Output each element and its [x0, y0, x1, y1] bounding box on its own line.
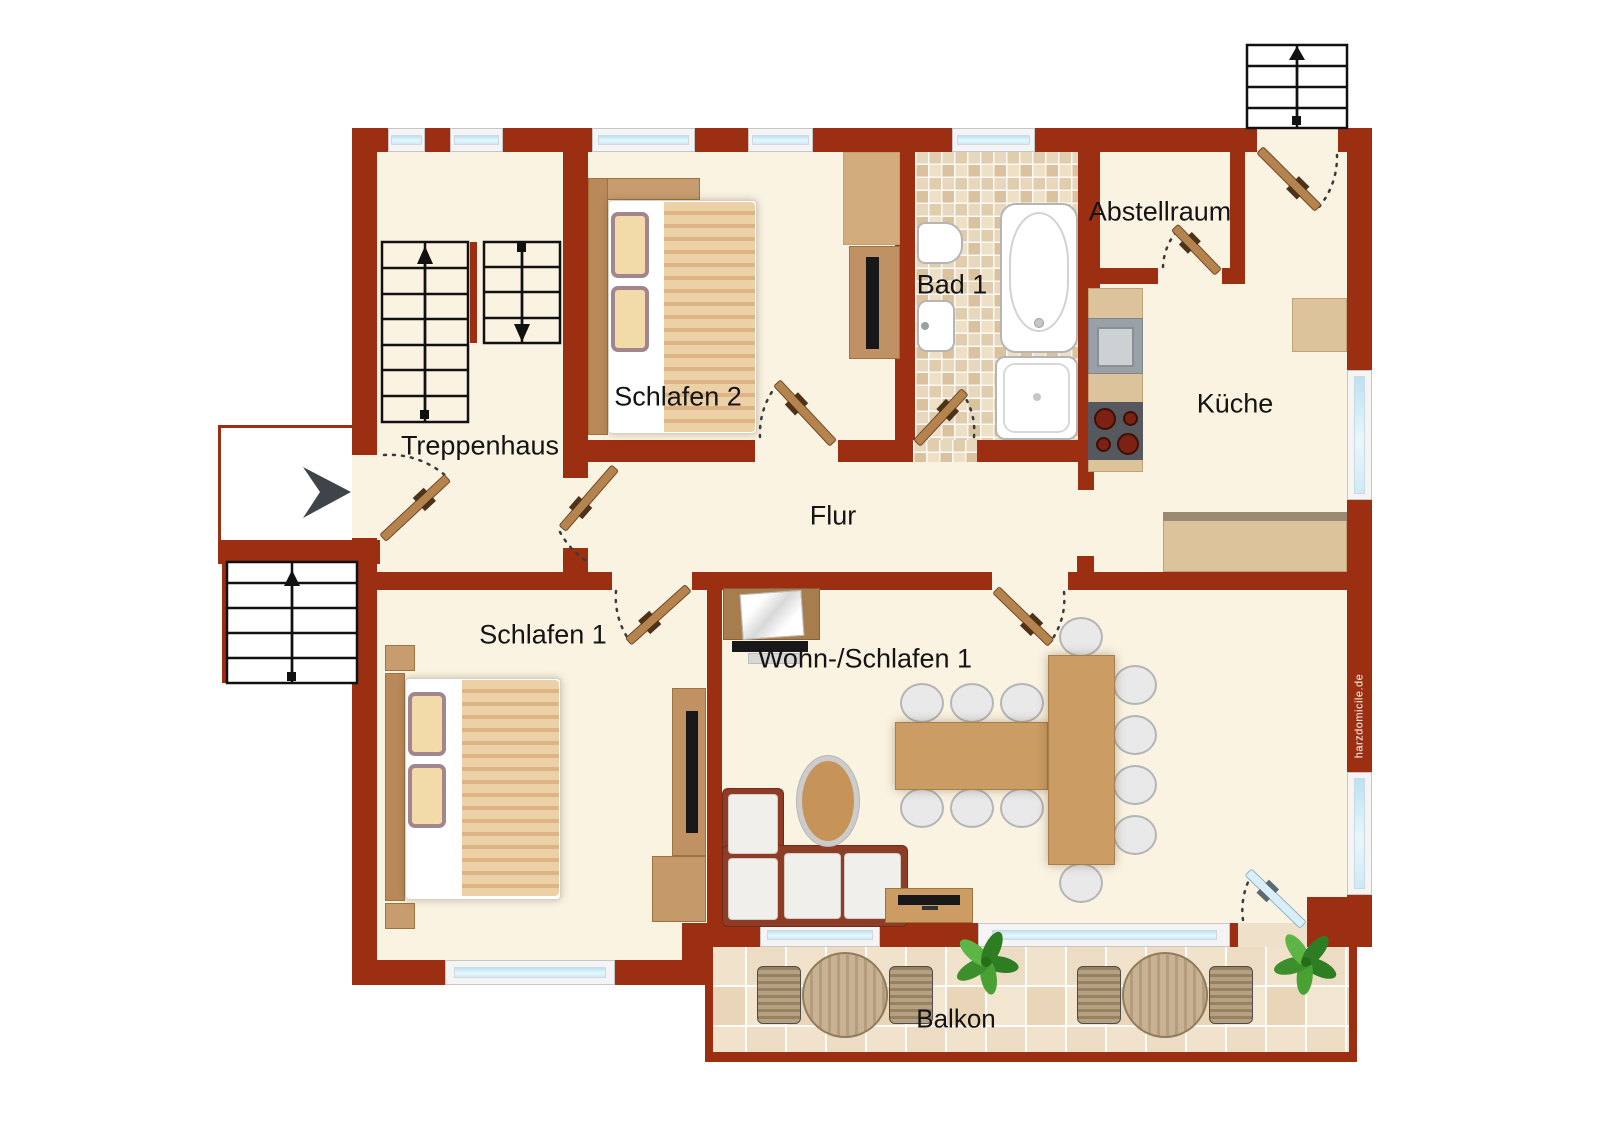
wall-kueche-wohn [1068, 572, 1347, 590]
tv-flat [898, 895, 960, 905]
dining-chair [950, 788, 994, 828]
window [388, 128, 425, 152]
dining-chair [1113, 815, 1157, 855]
dining-chair [1113, 715, 1157, 755]
bed2-pillow [611, 286, 649, 352]
stove-burner [1117, 433, 1139, 455]
dining-table-stem [895, 722, 1048, 790]
dresser-schlafen1 [652, 856, 706, 922]
room-label-wohnschlafen1: Wohn-/Schlafen 1 [758, 644, 972, 675]
bed1-blanket [462, 680, 559, 896]
dining-chair [900, 683, 944, 723]
bathtub-drain [1034, 318, 1044, 328]
watermark-text: harzdomicile.de [1353, 674, 1365, 759]
stove-burner [1094, 408, 1116, 430]
sofa-cushion [728, 794, 778, 854]
window [952, 128, 1035, 152]
wall-jog [682, 923, 707, 985]
coffee-table [797, 756, 859, 846]
dining-chair [1000, 683, 1044, 723]
dining-chair [1000, 788, 1044, 828]
sink-faucet [921, 322, 929, 330]
window-glass [992, 930, 1217, 940]
window-glass [1354, 778, 1366, 889]
bed1-headboard [385, 673, 405, 901]
entrance-door-opening [352, 455, 377, 538]
wall-top [352, 128, 1372, 152]
balcony-table [1122, 952, 1208, 1038]
wall-left-lower [352, 538, 377, 985]
monitor-schlafen2 [866, 257, 879, 349]
wall-schlafen1-bottom-a [352, 960, 445, 985]
exterior-stairs-right [1247, 45, 1347, 128]
bed1-pillow [408, 692, 446, 756]
room-label-abstellraum: Abstellraum [1089, 197, 1232, 228]
corner-desk-mirror [739, 590, 804, 640]
dining-chair [1113, 765, 1157, 805]
stove-burner [1096, 437, 1111, 452]
window [592, 128, 695, 152]
bed1-sheet-fold [450, 680, 462, 896]
window [978, 923, 1230, 947]
monitor-schlafen1 [686, 711, 698, 833]
entrance-landing [218, 425, 357, 543]
window [1347, 370, 1372, 500]
bed2-pillow [611, 212, 649, 278]
watermark: harzdomicile.de [1346, 660, 1372, 772]
stair-rail-line [222, 564, 226, 683]
balcony-door-opening [1238, 923, 1307, 947]
wall-abstell-bottom-a [1078, 268, 1158, 284]
balcony-parapet-right [1349, 947, 1357, 1062]
balcony-chair [1077, 966, 1121, 1024]
dining-chair [1059, 863, 1103, 903]
kitchen-sideboard-top [1163, 512, 1347, 521]
dining-chair [1059, 617, 1103, 657]
dining-table-crossbar [1048, 655, 1115, 865]
wall-flur-top-a [563, 440, 755, 462]
bed1-pillow [408, 764, 446, 828]
window-glass [454, 967, 605, 978]
room-label-bad1: Bad 1 [917, 270, 988, 301]
balcony-parapet-bottom [705, 1052, 1357, 1062]
balcony-table [802, 952, 888, 1038]
room-label-flur: Flur [810, 501, 857, 532]
wall-corner-block [1307, 897, 1372, 947]
stove-burner [1123, 411, 1138, 426]
sofa-cushion [784, 853, 841, 919]
dining-chair [950, 683, 994, 723]
wall-treppenhaus-divider [563, 128, 588, 478]
entry-shelf [1292, 298, 1347, 352]
window-glass [1354, 376, 1366, 494]
window-glass [598, 135, 689, 145]
room-label-kueche: Küche [1197, 389, 1274, 420]
window-glass [391, 135, 423, 145]
nightstand [385, 645, 415, 671]
shower-drain [1033, 393, 1041, 401]
sofa-cushion [728, 858, 778, 920]
dining-chair [1113, 665, 1157, 705]
wall-abstell-right [1230, 152, 1245, 284]
wall-kueche-notch [1077, 556, 1094, 572]
kitchen-sink-basin [1097, 327, 1134, 367]
stair-up-arrow [284, 570, 300, 681]
stair-up-arrow [1289, 46, 1305, 125]
window [450, 128, 503, 152]
wall-schlafen1-top [377, 572, 612, 590]
dining-chair [900, 788, 944, 828]
window-glass [752, 135, 809, 145]
exterior-stairs-left [227, 562, 357, 683]
tv-stand [922, 906, 938, 910]
floor-plan: Treppenhaus Schlafen 2 Bad 1 Abstellraum… [0, 0, 1600, 1131]
balcony-chair [757, 966, 801, 1024]
window [748, 128, 813, 152]
bath-door-opening [913, 440, 977, 462]
window-glass [454, 135, 500, 145]
bathtub-basin [1009, 212, 1069, 332]
shelf-schlafen2 [843, 152, 900, 245]
room-label-schlafen1: Schlafen 1 [479, 620, 607, 651]
bed2-headboard [588, 178, 608, 435]
nightstand [385, 903, 415, 929]
room-label-balkon: Balkon [916, 1004, 996, 1035]
room-label-treppenhaus: Treppenhaus [401, 431, 559, 462]
kitchen-sideboard [1163, 512, 1347, 572]
wall-flur-top-b [838, 440, 913, 462]
wall-schlafen1-bottom-b [615, 960, 690, 985]
window-glass [957, 135, 1030, 145]
window [445, 960, 615, 985]
balcony-chair [1209, 966, 1253, 1024]
wall-schlafen1-wohn [707, 588, 722, 925]
window-glass [767, 930, 873, 940]
toilet [917, 222, 963, 264]
room-label-schlafen2: Schlafen 2 [614, 382, 742, 413]
wall-wohn-bottom-c [1230, 923, 1238, 947]
window [1347, 772, 1372, 895]
entry-door-opening [1257, 128, 1338, 152]
wall-left-upper [352, 128, 377, 455]
